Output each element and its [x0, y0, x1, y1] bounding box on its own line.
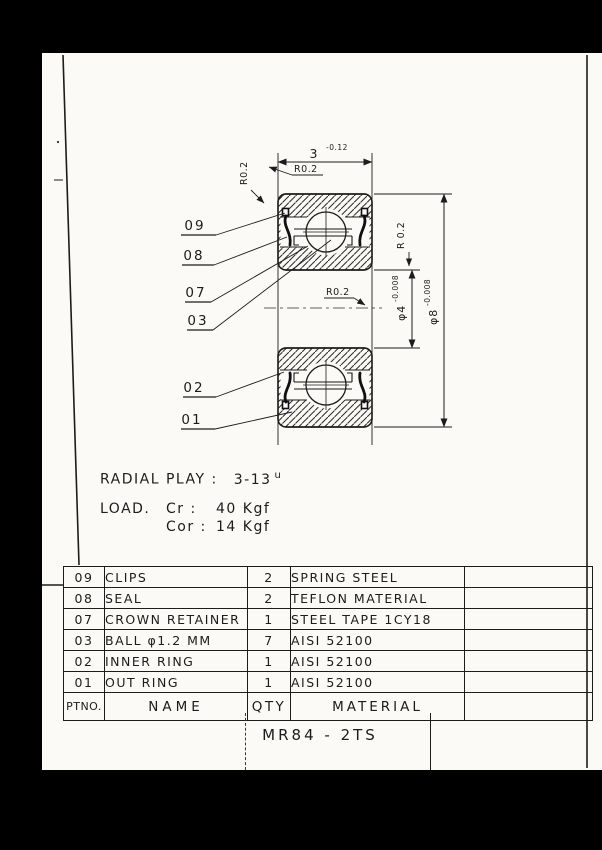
cell-blank [465, 567, 593, 588]
load-cr-value: 40 Kgf [216, 501, 270, 517]
part-callout-08: 08 [182, 237, 287, 265]
load-cr-name: Cr : [166, 501, 214, 517]
table-header-row: PTNO. NAME QTY MATERIAL [64, 693, 593, 721]
cell-qty: 2 [248, 588, 291, 609]
part-callout-01: 01 [181, 412, 292, 429]
svg-text:01: 01 [181, 412, 202, 428]
cell-material: AISI 52100 [291, 672, 465, 693]
svg-text:08: 08 [183, 248, 204, 264]
cell-name: CROWN RETAINER [105, 609, 248, 630]
width-dim-value: 3 [310, 146, 319, 161]
cell-name: OUT RING [105, 672, 248, 693]
svg-text:02: 02 [183, 380, 204, 396]
radial-play-label: RADIAL PLAY : [100, 472, 218, 488]
load-note: LOAD. Cr : 40 Kgf Cor : 14 Kgf [100, 501, 270, 535]
outer-dim-tolerance: -0.008 [423, 279, 432, 306]
cell-material: STEEL TAPE 1CY18 [291, 609, 465, 630]
part-number-title: MR84 - 2TS [245, 726, 395, 744]
radial-play-unit: u [275, 470, 283, 481]
cell-ptno: 02 [64, 651, 105, 672]
load-cor-name: Cor : [166, 519, 214, 535]
cell-blank [465, 672, 593, 693]
header-ptno: PTNO. [64, 693, 105, 721]
cell-material: TEFLON MATERIAL [291, 588, 465, 609]
radius-callout-top: R0.2 [269, 164, 323, 175]
cell-ptno: 08 [64, 588, 105, 609]
cell-name: BALL φ1.2 MM [105, 630, 248, 651]
bearing-upper-section [278, 194, 372, 270]
cell-name: INNER RING [105, 651, 248, 672]
table-row: 01 OUT RING 1 AISI 52100 [64, 672, 593, 693]
title-block-right-divider [430, 713, 431, 770]
cell-qty: 1 [248, 651, 291, 672]
svg-text:R0.2: R0.2 [294, 164, 318, 175]
cell-name: SEAL [105, 588, 248, 609]
cell-ptno: 07 [64, 609, 105, 630]
outer-dimension: φ8 -0.008 [374, 194, 452, 427]
outer-dim-value: φ8 [427, 309, 440, 325]
load-label: LOAD. [100, 501, 166, 517]
cell-blank [465, 609, 593, 630]
cell-material: AISI 52100 [291, 630, 465, 651]
bore-dim-value: φ4 [395, 305, 408, 321]
svg-text:R0.2: R0.2 [239, 161, 250, 185]
drawing-sheet: 3 -0.12 R0.2 R0.2 [42, 53, 602, 770]
radial-play-note: RADIAL PLAY :3-13u [100, 470, 282, 488]
table-row: 07 CROWN RETAINER 1 STEEL TAPE 1CY18 [64, 609, 593, 630]
header-blank [465, 693, 593, 721]
cell-ptno: 09 [64, 567, 105, 588]
scanned-drawing-background: { "page": { "paper_color": "#fbfaf7", "i… [0, 0, 602, 850]
load-row-cr: Cr : 40 Kgf [166, 501, 270, 517]
cell-blank [465, 588, 593, 609]
cell-blank [465, 630, 593, 651]
radius-callout-middle: R0.2 [324, 287, 365, 305]
header-name: NAME [105, 693, 248, 721]
cell-blank [465, 651, 593, 672]
cell-material: SPRING STEEL [291, 567, 465, 588]
part-callout-09: 09 [181, 213, 285, 235]
cell-qty: 2 [248, 567, 291, 588]
cell-material: AISI 52100 [291, 651, 465, 672]
svg-text:R0.2: R0.2 [326, 287, 350, 298]
parts-table: 09 CLIPS 2 SPRING STEEL 08 SEAL 2 TEFLON… [63, 566, 593, 721]
svg-text:07: 07 [185, 285, 206, 301]
table-row: 03 BALL φ1.2 MM 7 AISI 52100 [64, 630, 593, 651]
table-row: 08 SEAL 2 TEFLON MATERIAL [64, 588, 593, 609]
load-row-cor: Cor : 14 Kgf [166, 519, 270, 535]
bearing-lower-section [278, 348, 372, 427]
cell-qty: 1 [248, 609, 291, 630]
scan-speck [57, 141, 59, 143]
radius-callout-right: R 0.2 [396, 222, 409, 266]
cell-ptno: 03 [64, 630, 105, 651]
svg-text:09: 09 [184, 218, 205, 234]
radial-play-value: 3-13 [234, 472, 272, 488]
header-material: MATERIAL [291, 693, 465, 721]
table-row: 02 INNER RING 1 AISI 52100 [64, 651, 593, 672]
bore-dim-tolerance: -0.008 [391, 275, 400, 302]
svg-text:03: 03 [187, 313, 208, 329]
load-rows: Cr : 40 Kgf Cor : 14 Kgf [166, 501, 270, 535]
part-callout-02: 02 [183, 372, 284, 397]
width-dim-tolerance: -0.12 [326, 143, 348, 152]
cell-qty: 7 [248, 630, 291, 651]
svg-text:R 0.2: R 0.2 [396, 222, 407, 249]
cell-qty: 1 [248, 672, 291, 693]
bore-dimension: φ4 -0.008 [374, 270, 420, 348]
load-cor-value: 14 Kgf [216, 519, 270, 535]
radius-callout-top-left: R0.2 [239, 161, 264, 203]
table-row: 09 CLIPS 2 SPRING STEEL [64, 567, 593, 588]
width-dimension: 3 -0.12 [278, 143, 372, 162]
cell-ptno: 01 [64, 672, 105, 693]
cell-name: CLIPS [105, 567, 248, 588]
header-qty: QTY [248, 693, 291, 721]
